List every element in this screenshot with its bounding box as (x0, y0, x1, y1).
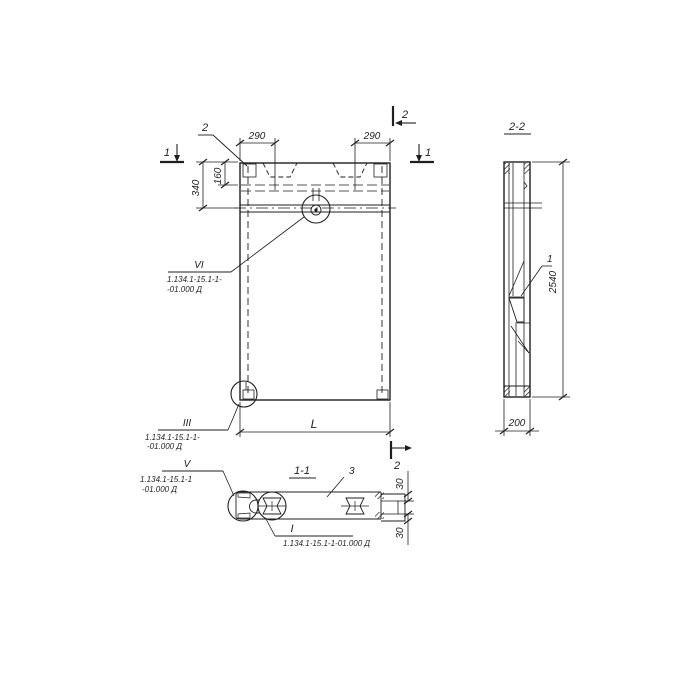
top-notch-right (333, 163, 367, 177)
cut-marker-1-left: 1 (160, 144, 184, 162)
callout-i-numeral: I (290, 523, 293, 535)
dim-290-right: 290 (351, 131, 394, 190)
drawing-sheet: 1 1 2 2 2 290 290 (0, 0, 700, 700)
dim-290-left: 290 (236, 131, 279, 190)
section-2-2-title: 2-2 (508, 121, 525, 133)
callout-vi-line1: 1.134.1-15.1-1- (167, 275, 222, 284)
section-2-2: 2-2 1 2540 (495, 121, 570, 436)
dim-290-right-label: 290 (363, 131, 381, 142)
arrow-left-icon (395, 120, 402, 126)
dim-200: 200 (495, 399, 539, 436)
dim-2540-label: 2540 (548, 270, 559, 294)
embed-plate-top-left (243, 164, 256, 177)
detail-circle-v (228, 491, 258, 521)
dim-340-label: 340 (191, 179, 202, 196)
callout-iii-line2: -01.000 Д (147, 442, 182, 451)
dim-2540: 2540 (532, 159, 570, 400)
dim-length-label: L (311, 417, 318, 431)
plan-view (231, 163, 396, 407)
callout-v-line2: -01.000 Д (142, 485, 177, 494)
cut-marker-1-right: 1 (410, 144, 434, 162)
dim-30-top: 30 (395, 471, 414, 504)
cut2-bottom-label: 2 (393, 460, 400, 472)
dim-200-label: 200 (508, 418, 526, 429)
cut-marker-2-top: 2 (393, 106, 416, 126)
callout-vi: VI 1.134.1-15.1-1- -01.000 Д (167, 217, 304, 294)
callout-i: I 1.134.1-15.1-1-01.000 Д (266, 519, 370, 548)
callout-vi-line2: -01.000 Д (167, 285, 202, 294)
rebar-jog (524, 182, 527, 189)
cut2-top-label: 2 (401, 109, 408, 121)
dim-160-label: 160 (213, 167, 224, 184)
part-1-label: 1 (547, 254, 553, 265)
dim-30-top-label: 30 (395, 478, 406, 490)
embed-leader-label: 2 (201, 122, 208, 134)
callout-iii-line1: 1.134.1-15.1-1- (145, 433, 200, 442)
dim-30-bottom: 30 (395, 511, 414, 545)
detail-circle-iii (231, 381, 257, 407)
embed-plate-bottom-right (377, 390, 388, 399)
dim-160: 160 (213, 159, 238, 188)
callout-v-line1: 1.134.1-15.1-1 (140, 475, 192, 484)
callout-vi-numeral: VI (194, 260, 204, 271)
embed-plate-top-right (374, 164, 387, 177)
top-notch-left (263, 163, 297, 177)
callout-v-numeral: V (184, 459, 192, 470)
callout-v: V 1.134.1-15.1-1 -01.000 Д (140, 459, 234, 496)
cut-marker-2-bottom: 2 (391, 441, 412, 472)
arrow-right-icon (405, 445, 412, 451)
part-3-label: 3 (349, 466, 355, 477)
dim-30-bottom-label: 30 (395, 527, 406, 539)
key-wedge (509, 298, 524, 322)
cut1-right-label: 1 (425, 147, 431, 159)
dim-length-L: L (236, 402, 394, 437)
embed-plate-bottom-left (243, 390, 254, 399)
panel-drawing: 1 1 2 2 2 290 290 (0, 0, 700, 700)
section-1-1-title: 1-1 (294, 465, 310, 477)
section-1-1: 1-1 3 30 (140, 459, 414, 548)
callout-iii: III 1.134.1-15.1-1- -01.000 Д (145, 404, 239, 451)
cut1-left-label: 1 (164, 147, 170, 159)
callout-i-line: 1.134.1-15.1-1-01.000 Д (283, 539, 370, 548)
callout-iii-numeral: III (183, 418, 192, 429)
dim-290-left-label: 290 (248, 131, 266, 142)
